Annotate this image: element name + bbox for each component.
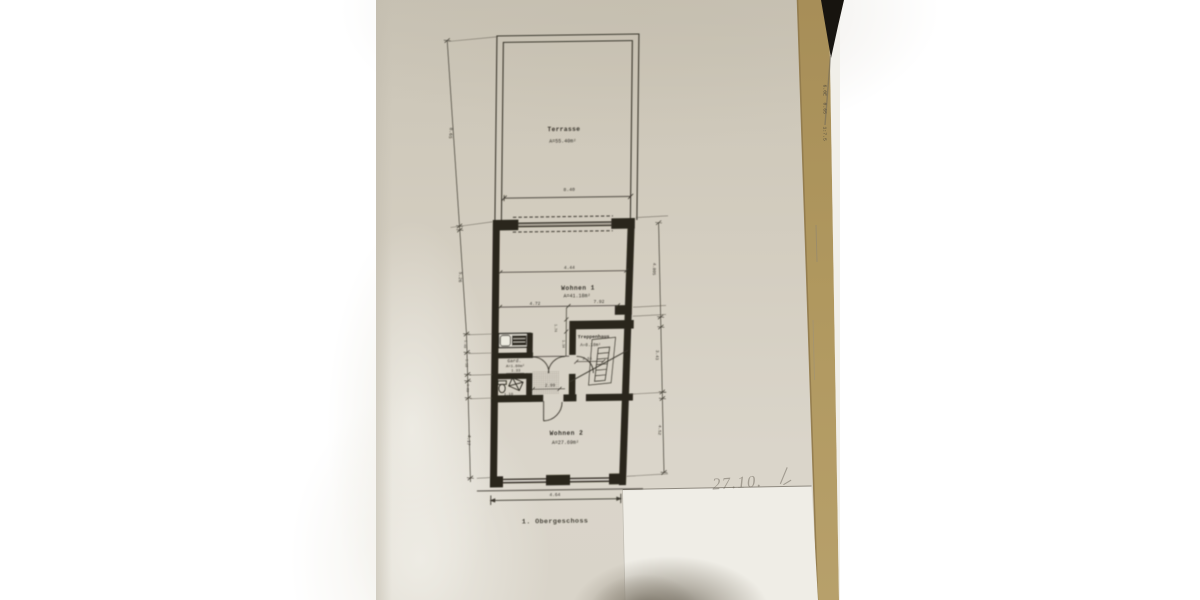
svg-text:8.40: 8.40 [563, 187, 575, 193]
svg-text:6.0E: 6.0E [822, 85, 828, 97]
svg-text:4.72: 4.72 [530, 301, 541, 307]
svg-text:7.92: 7.92 [594, 299, 605, 305]
svg-text:1.34: 1.34 [560, 340, 564, 348]
svg-text:2.99: 2.99 [545, 384, 556, 389]
svg-text:0.65: 0.65 [822, 103, 828, 115]
svg-text:A=55.40m²: A=55.40m² [549, 138, 576, 144]
svg-text:4.52: 4.52 [656, 425, 660, 436]
svg-text:4.17: 4.17 [465, 435, 471, 446]
svg-text:Gard.: Gard. [507, 358, 521, 364]
svg-text:A=27.69m²: A=27.69m² [552, 440, 579, 446]
svg-text:5.26: 5.26 [457, 272, 463, 283]
svg-text:A=41.18m²: A=41.18m² [563, 293, 590, 299]
svg-text:A=8.18m²: A=8.18m² [580, 342, 601, 348]
svg-text:1.10: 1.10 [504, 393, 514, 397]
svg-text:1.10: 1.10 [464, 359, 469, 367]
svg-text:1.74: 1.74 [552, 324, 556, 332]
svg-text:4.64: 4.64 [549, 492, 560, 498]
svg-text:8.65: 8.65 [447, 127, 454, 139]
svg-text:Wohnen 1: Wohnen 1 [561, 285, 595, 292]
svg-text:1:7.5: 1:7.5 [822, 127, 828, 142]
svg-text:4.805: 4.805 [651, 263, 655, 276]
svg-text:27.10.: 27.10. [712, 471, 763, 493]
svg-text:Wohnen 2: Wohnen 2 [550, 430, 584, 437]
svg-text:Terrasse: Terrasse [547, 126, 580, 133]
svg-text:1.89: 1.89 [466, 384, 471, 392]
svg-text:3.43: 3.43 [654, 350, 658, 361]
svg-text:1.40: 1.40 [463, 340, 468, 348]
svg-text:4.44: 4.44 [564, 265, 575, 271]
svg-text:1. Obergeschoss: 1. Obergeschoss [522, 518, 589, 527]
